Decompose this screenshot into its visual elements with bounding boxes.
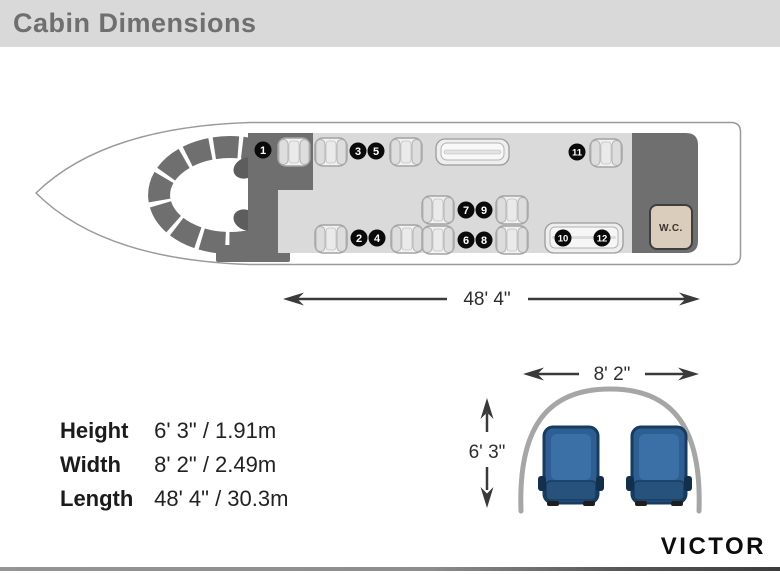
length-dimension-label: 48' 4" [463,289,510,310]
seat-number-badge: 7 [458,202,475,219]
seat-number-badge: 1 [255,142,272,159]
seat-number: 3 [355,146,361,158]
spec-value: 6' 3" / 1.91m [154,418,276,443]
wc-label: W.C. [659,223,683,234]
seat-number: 6 [463,235,469,247]
passenger-seat [590,139,622,167]
seat-number-badge: 4 [369,230,386,247]
spec-value: 8' 2" / 2.49m [154,452,276,477]
seat-number: 11 [572,147,583,158]
seat-number: 9 [481,205,487,217]
passenger-seat [496,196,528,224]
spec-row-height: Height 6' 3" / 1.91m [60,414,288,448]
spec-row-width: Width 8' 2" / 2.49m [60,448,288,482]
passenger-seat [278,138,310,166]
spec-row-length: Length 48' 4" / 30.3m [60,482,288,516]
passenger-seat [496,226,528,254]
seat-number: 12 [597,233,608,244]
spec-label: Width [60,448,148,482]
seat-number-badge: 6 [458,232,475,249]
seat-number-badge: 5 [368,143,385,160]
seat-number: 1 [260,145,266,157]
passenger-seat [422,196,454,224]
seat-number-badge: 10 [555,230,572,247]
seat-number: 5 [373,146,379,158]
seat-number: 4 [374,233,381,245]
floorplan: W.C. 1 2 3 4 5 6 7 [36,123,741,311]
cabin-dimensions-panel: Cabin Dimensions [0,0,780,574]
passenger-seat [422,226,454,254]
cross-section: 8' 2" 6' 3" [469,364,700,511]
seat-number: 8 [481,235,487,247]
bottom-rule [0,567,780,571]
arrowhead-down-icon [481,487,494,508]
height-dimension-label: 6' 3" [469,442,506,463]
passenger-seat [391,225,423,253]
cabin-seat-front-view [538,427,604,506]
seat-number-badge: 12 [594,230,611,247]
width-dimension-label: 8' 2" [594,364,631,385]
seat-number-badge: 2 [351,230,368,247]
passenger-seat [315,225,347,253]
specs-table: Height 6' 3" / 1.91m Width 8' 2" / 2.49m… [60,414,288,516]
credenza [436,139,509,165]
spec-value: 48' 4" / 30.3m [154,486,288,511]
seat-number: 10 [558,233,569,244]
brand-logo: VICTOR [661,533,766,561]
passenger-seat [390,138,422,166]
seat-number-badge: 9 [476,202,493,219]
seat-number: 2 [356,233,362,245]
wc-box: W.C. [650,205,692,249]
spec-label: Height [60,414,148,448]
passenger-seat [315,138,347,166]
cabin-seat-front-view [626,427,692,506]
seat-number-badge: 3 [350,143,367,160]
seat-number-badge: 11 [569,144,586,161]
seat-number-badge: 8 [476,232,493,249]
spec-label: Length [60,482,148,516]
seat-number: 7 [463,205,469,217]
